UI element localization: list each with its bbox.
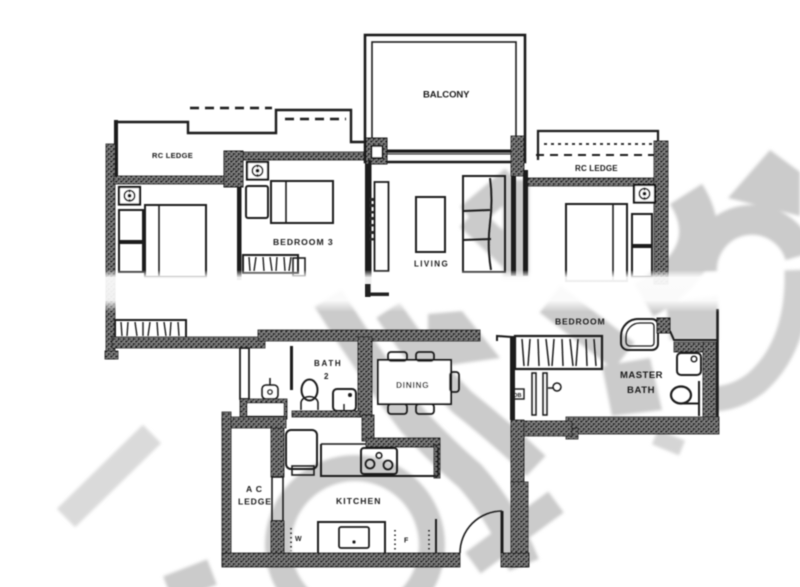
svg-text:RC LEDGE: RC LEDGE: [152, 151, 193, 160]
svg-text:DB: DB: [514, 393, 522, 399]
svg-text:W: W: [295, 536, 302, 543]
svg-text:LIVING: LIVING: [414, 260, 448, 269]
svg-text:LEDGE: LEDGE: [238, 497, 271, 507]
svg-text:F: F: [404, 538, 409, 545]
svg-text:BEDROOM 3: BEDROOM 3: [273, 237, 333, 247]
svg-text:MASTER: MASTER: [620, 370, 663, 381]
svg-text:BATH: BATH: [627, 385, 655, 396]
svg-text:BALCONY: BALCONY: [423, 90, 470, 101]
svg-text:KITCHEN: KITCHEN: [336, 496, 381, 506]
svg-text:DINING: DINING: [396, 380, 429, 390]
svg-text:RC LEDGE: RC LEDGE: [575, 164, 618, 173]
svg-text:BATH: BATH: [314, 359, 341, 368]
svg-text:2: 2: [324, 372, 329, 381]
svg-text:BEDROOM: BEDROOM: [555, 317, 605, 327]
